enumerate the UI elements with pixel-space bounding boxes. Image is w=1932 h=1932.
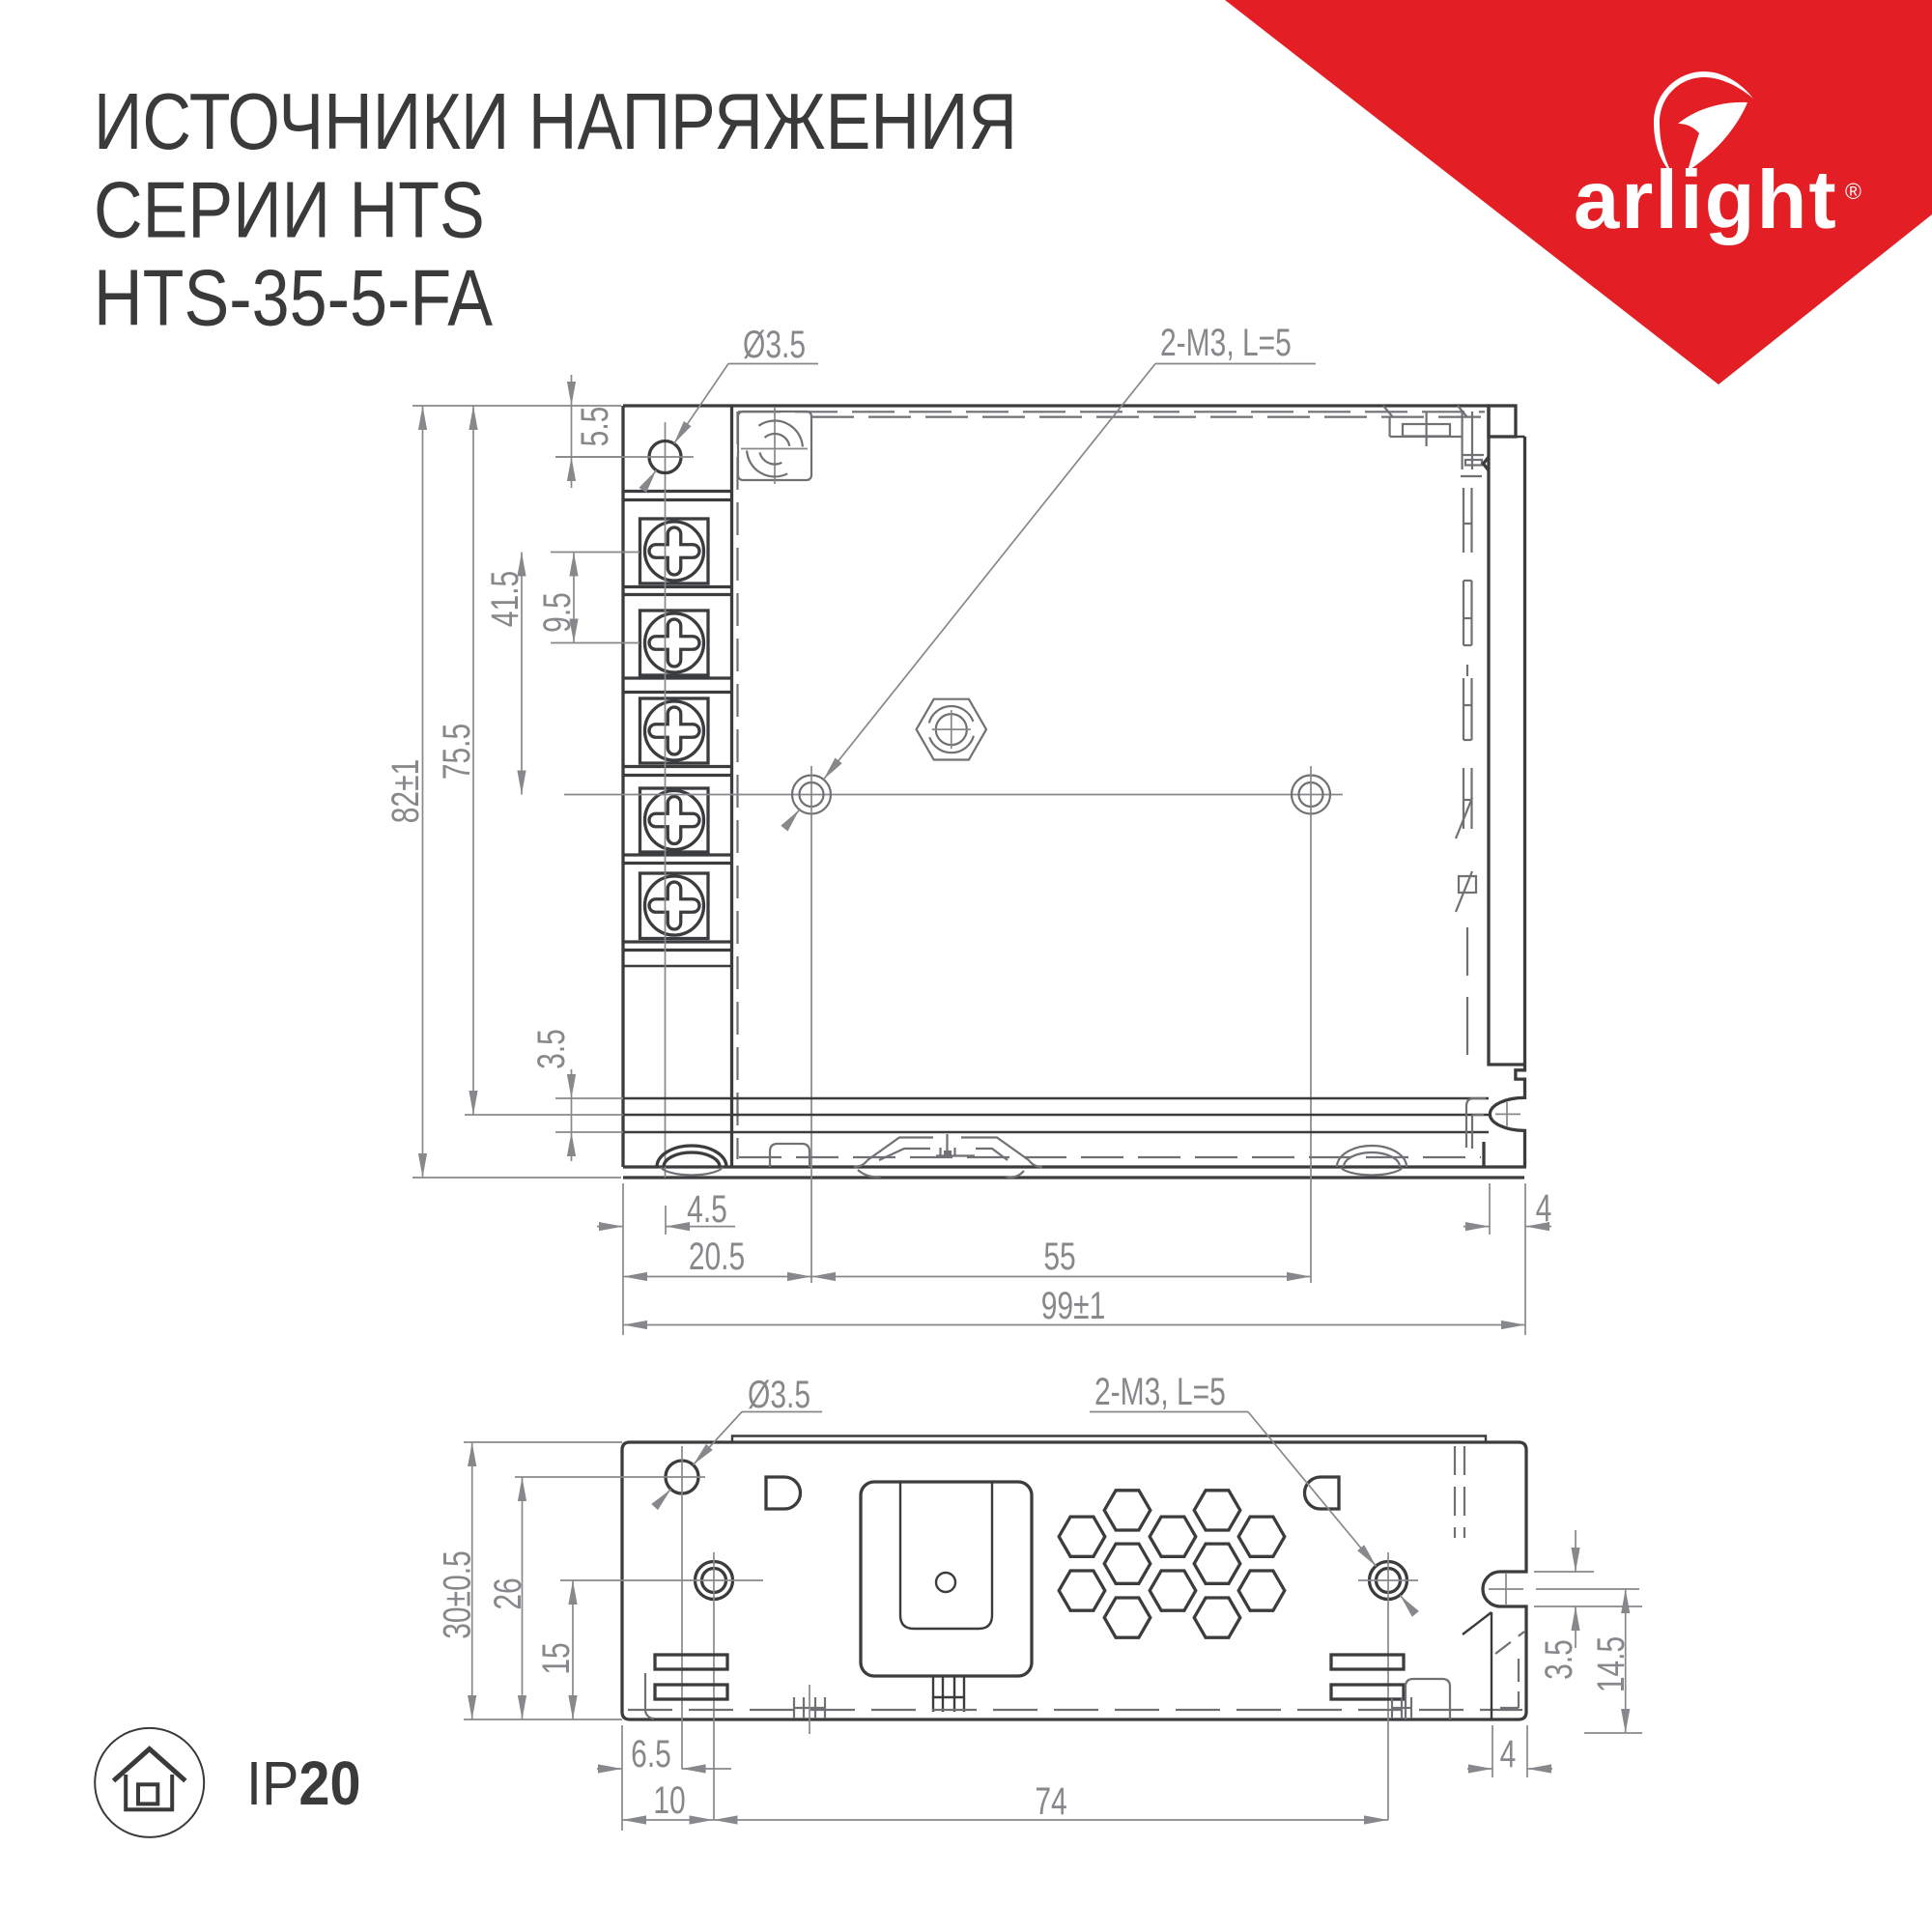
svg-text:3.5: 3.5 xyxy=(530,1029,573,1069)
svg-text:5.5: 5.5 xyxy=(574,407,616,447)
svg-text:HTS-35-5-FA: HTS-35-5-FA xyxy=(94,253,494,343)
svg-text:99±1: 99±1 xyxy=(1041,1285,1106,1327)
svg-text:75.5: 75.5 xyxy=(436,724,478,780)
svg-text:82±1: 82±1 xyxy=(384,759,427,824)
svg-text:3.5: 3.5 xyxy=(1538,1639,1580,1680)
svg-text:СЕРИИ HTS: СЕРИИ HTS xyxy=(94,165,485,255)
svg-text:2-М3, L=5: 2-М3, L=5 xyxy=(1160,322,1292,364)
svg-text:ИСТОЧНИКИ НАПРЯЖЕНИЯ: ИСТОЧНИКИ НАПРЯЖЕНИЯ xyxy=(94,76,1017,166)
svg-text:Ø3.5: Ø3.5 xyxy=(743,324,806,366)
svg-text:4.5: 4.5 xyxy=(687,1188,727,1231)
svg-text:26: 26 xyxy=(487,1577,529,1609)
svg-text:14.5: 14.5 xyxy=(1590,1636,1633,1692)
svg-text:arlight: arlight xyxy=(1574,155,1838,246)
svg-text:®: ® xyxy=(1845,179,1861,204)
svg-text:2-М3, L=5: 2-М3, L=5 xyxy=(1094,1371,1226,1413)
svg-text:20.5: 20.5 xyxy=(689,1236,745,1278)
svg-text:4: 4 xyxy=(1500,1733,1517,1776)
svg-text:30±0.5: 30±0.5 xyxy=(436,1550,478,1639)
svg-text:9.5: 9.5 xyxy=(536,592,579,633)
svg-text:55: 55 xyxy=(1043,1236,1075,1278)
svg-text:15: 15 xyxy=(535,1642,578,1674)
svg-text:IP20: IP20 xyxy=(246,1748,360,1817)
svg-text:74: 74 xyxy=(1035,1780,1066,1823)
svg-text:10: 10 xyxy=(653,1779,685,1822)
svg-text:41.5: 41.5 xyxy=(484,571,526,627)
svg-text:6.5: 6.5 xyxy=(631,1733,671,1776)
svg-text:4: 4 xyxy=(1536,1187,1552,1230)
svg-text:Ø3.5: Ø3.5 xyxy=(748,1374,810,1416)
